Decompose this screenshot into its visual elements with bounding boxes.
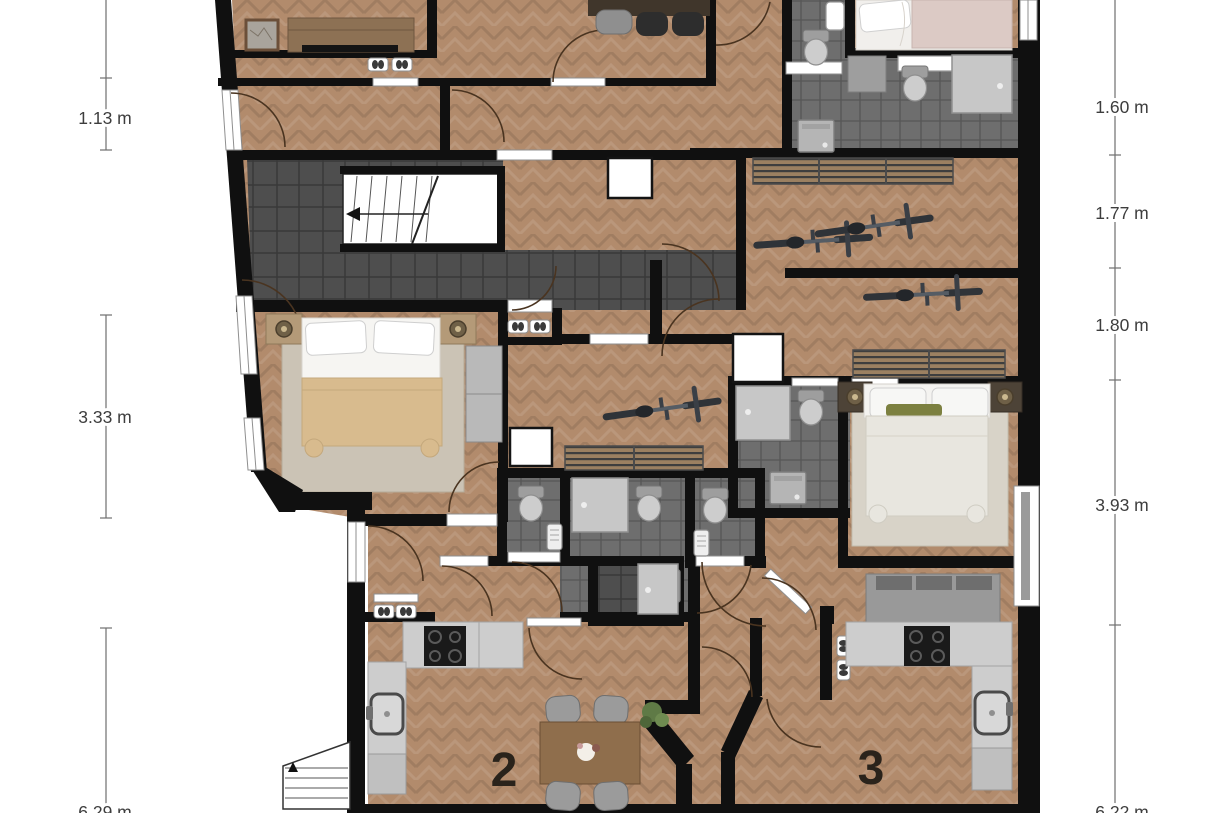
double-bed-icon <box>856 0 1012 50</box>
boiler-icon <box>547 524 562 550</box>
toilet-icon <box>518 486 544 521</box>
chair-icon <box>545 695 581 726</box>
radiator-icon <box>853 350 1005 378</box>
chair-icon <box>593 781 629 811</box>
bath-sink-icon <box>826 2 844 30</box>
shaft-icon <box>608 158 652 198</box>
kitchen-sink-icon <box>975 692 1013 734</box>
chair-icon <box>596 10 632 34</box>
lamp-icon <box>450 321 466 337</box>
cooktop-icon <box>424 626 466 666</box>
radiator-icon <box>565 446 703 470</box>
chair-icon <box>672 12 704 36</box>
shower-icon <box>952 55 1012 113</box>
dimension-label-right-3: 1.80 m <box>1095 315 1149 335</box>
dimension-label-left-3: 6.29 m <box>78 802 132 813</box>
wardrobe-icon <box>466 346 502 442</box>
dimension-label-right-1: 1.60 m <box>1095 97 1149 117</box>
toilet-icon <box>636 486 662 521</box>
sideboard-icon <box>288 18 414 52</box>
washing-machine-icon <box>798 120 834 152</box>
chair-icon <box>636 12 668 36</box>
floor-plan-canvas: 1.13 m 3.33 m 6.29 m 1.60 m 1.77 m 1.80 … <box>0 0 1220 813</box>
tv-icon <box>302 45 398 52</box>
dimension-label-right-4: 3.93 m <box>1095 495 1149 515</box>
dimension-label-right-5: 6.22 m <box>1095 802 1149 813</box>
toilet-icon <box>798 390 824 425</box>
kitchen-cabinet-icon <box>368 754 406 794</box>
kitchen-sink-icon <box>366 694 403 734</box>
shaft-icon <box>733 334 783 382</box>
lamp-icon <box>847 389 863 405</box>
kitchen-cabinet-icon <box>972 748 1012 790</box>
double-bed-icon <box>302 318 442 457</box>
picture-icon <box>246 20 278 50</box>
shower-icon <box>572 478 628 532</box>
shower-icon <box>736 386 790 440</box>
chair-icon <box>593 695 629 725</box>
washing-machine-icon <box>770 472 806 504</box>
floor-plan-page: 1.13 m 3.33 m 6.29 m 1.60 m 1.77 m 1.80 … <box>0 0 1220 813</box>
lamp-icon <box>997 389 1013 405</box>
bath-cabinet-icon <box>848 56 886 92</box>
apt3-sofa <box>866 574 1000 622</box>
staircase-icon <box>343 174 501 244</box>
dimension-label-left-1: 1.13 m <box>78 108 132 128</box>
cooktop-icon <box>904 626 950 666</box>
dining-table-icon <box>588 0 710 36</box>
exterior-stairs-icon <box>283 742 350 809</box>
dimension-label-right-2: 1.77 m <box>1095 203 1149 223</box>
lamp-icon <box>276 321 292 337</box>
boiler-icon <box>694 530 709 556</box>
shaft-icon <box>510 428 552 466</box>
toilet-icon <box>702 488 728 523</box>
apt2-shower-icon <box>638 564 678 614</box>
chair-icon <box>545 781 581 812</box>
toilet-icon <box>803 30 829 65</box>
apartment-2-label: 2 <box>491 744 518 797</box>
toilet-icon <box>902 66 928 101</box>
dimension-label-left-2: 3.33 m <box>78 407 132 427</box>
radiator-icon <box>753 158 953 184</box>
double-bed-icon <box>864 384 990 523</box>
apartment-3-label: 3 <box>858 742 885 795</box>
